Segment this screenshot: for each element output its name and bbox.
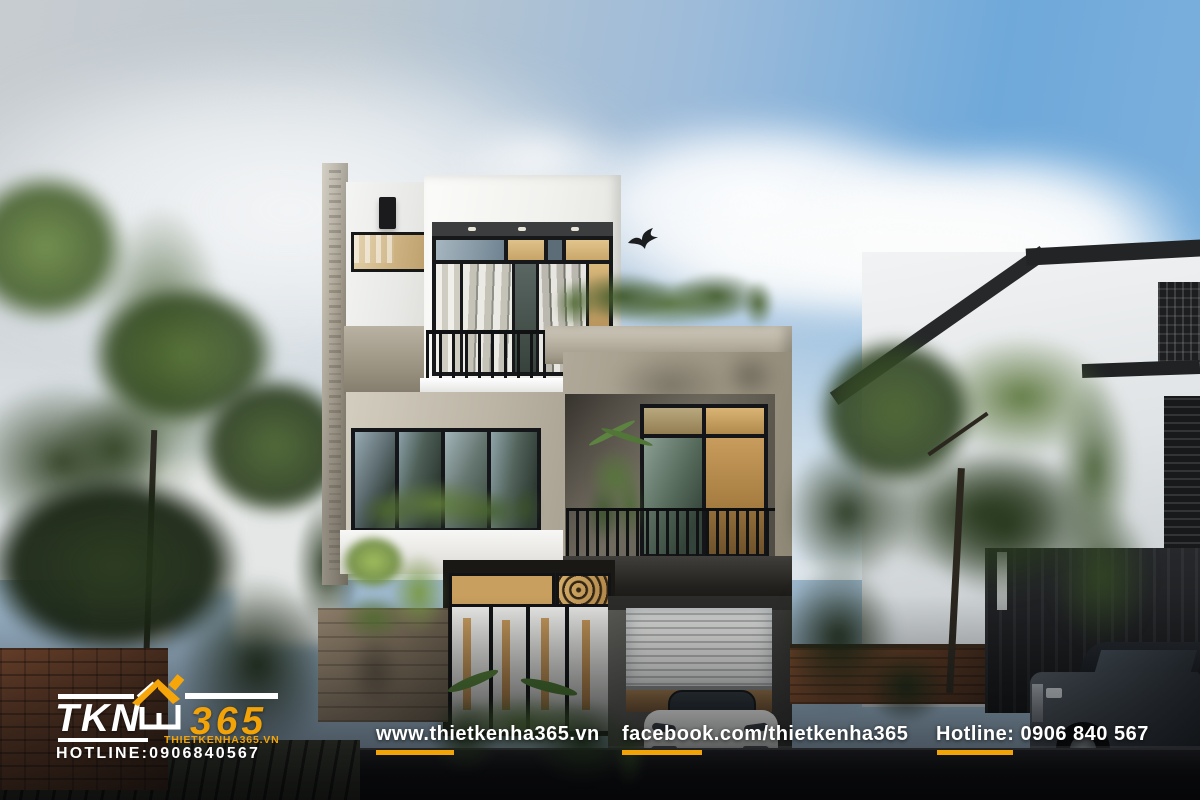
roof-hedge [546, 262, 782, 338]
second-balcony-railing [566, 508, 775, 561]
neighbor-screen-panel [1158, 282, 1200, 362]
house-icon [128, 672, 192, 734]
downlight [518, 227, 526, 231]
transom-pane-amber [508, 240, 544, 260]
downlight [468, 227, 476, 231]
footer-facebook: facebook.com/thietkenha365 [622, 723, 908, 746]
bird-icon [626, 228, 660, 256]
transom-pane-slate [548, 240, 562, 260]
upper-left-window-curtain [354, 235, 394, 263]
stone-pillar-engraving [329, 170, 341, 570]
footer-hotline: Hotline: 0906 840 567 [936, 723, 1149, 746]
watermark-logo: TKN 365 THIETKENHA365.VN HOTLINE:0906840… [54, 668, 286, 766]
planter-wall [344, 326, 430, 394]
logo-hotline: HOTLINE:0906840567 [56, 745, 260, 763]
footer-website-underline [376, 750, 454, 755]
balcony-railing [426, 330, 548, 384]
footer-facebook-underline [622, 750, 702, 755]
footer-website: www.thietkenha365.vn [376, 723, 600, 746]
inner-transom-amber [706, 408, 764, 434]
transom-pane-slate [436, 240, 504, 260]
inner-transom-slate [644, 408, 702, 434]
wall-lamp [379, 197, 396, 229]
transom-pane-amber [566, 240, 609, 260]
footer-hotline-underline [937, 750, 1013, 755]
logo-bar-right [185, 693, 278, 699]
logo-bar-bottom [58, 738, 148, 742]
downlight [571, 227, 579, 231]
architecture-render: TKN 365 THIETKENHA365.VN HOTLINE:0906840… [0, 0, 1200, 800]
